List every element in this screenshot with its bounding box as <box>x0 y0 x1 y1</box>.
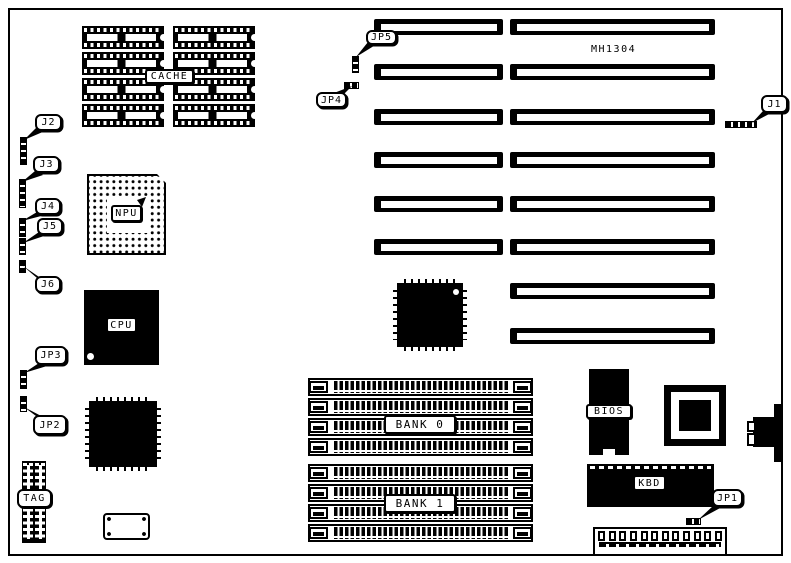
pin-strip <box>157 408 161 460</box>
isa-slot <box>510 239 715 255</box>
simm-socket <box>308 438 533 456</box>
bank1-label: BANK 1 <box>384 494 456 513</box>
callout-j2: J2 <box>35 114 62 131</box>
power-connector-pins <box>595 529 725 541</box>
chip-dash-line <box>590 466 711 469</box>
jumper-j4 <box>19 218 26 237</box>
callout-j4: J4 <box>35 198 61 215</box>
simm-latch <box>309 421 328 433</box>
isa-slot <box>374 239 503 255</box>
dip-notch <box>251 86 258 93</box>
dip-slot <box>178 34 247 41</box>
isa-slot <box>374 109 503 125</box>
callout-jp2: JP2 <box>33 415 67 435</box>
simm-socket <box>308 378 533 396</box>
simm-latch <box>513 401 532 413</box>
pin-strip <box>85 408 89 460</box>
simm-latch <box>309 527 328 539</box>
isa-slot <box>510 328 715 344</box>
dip-notch <box>251 34 258 41</box>
jumper-j3 <box>19 179 26 208</box>
simm-latch <box>513 467 532 479</box>
callout-jp5: JP5 <box>366 30 397 45</box>
simm-latch <box>309 487 328 499</box>
pin-strip <box>393 290 397 340</box>
crystal-footprint <box>103 513 150 540</box>
isa-slot <box>510 109 715 125</box>
pin-strip <box>463 290 467 340</box>
simm-latch <box>513 441 532 453</box>
pin-hole <box>694 531 701 541</box>
jumper-jp5 <box>352 56 359 73</box>
motherboard-diagram: CACHE J2 J3 J4 J5 J6 JP3 JP2 NPU CPU TAG… <box>0 0 791 563</box>
pin1-dot <box>87 353 94 360</box>
simm-latch <box>309 401 328 413</box>
isa-slot <box>510 64 715 80</box>
dip-notch <box>251 112 258 119</box>
callout-jp1: JP1 <box>712 489 743 507</box>
simm-latch <box>309 441 328 453</box>
dip-notch <box>251 60 258 67</box>
isa-slot <box>374 196 503 212</box>
din-keyboard-connector <box>753 417 779 447</box>
dip-slot <box>87 34 156 41</box>
simm-socket <box>308 524 533 542</box>
qfp-chip <box>397 283 463 347</box>
jumper-j5 <box>19 238 26 255</box>
bios-label: BIOS <box>586 404 632 419</box>
pin1-dot <box>453 289 459 295</box>
npu-label: NPU <box>111 205 142 222</box>
pin-hole <box>683 531 690 541</box>
simm-latch <box>513 381 532 393</box>
cache-dip-socket <box>82 104 164 127</box>
pin-hole <box>598 531 605 541</box>
cpu-label: CPU <box>106 317 137 333</box>
pin-hole <box>715 531 722 541</box>
cache-label: CACHE <box>145 69 194 84</box>
chip-notch <box>603 449 615 455</box>
din-connector-tab <box>747 421 756 432</box>
callout-jp3: JP3 <box>35 346 67 365</box>
dip-slot <box>87 86 156 93</box>
simm-latch <box>513 421 532 433</box>
jumper-jp1 <box>686 518 701 525</box>
pin-hole <box>651 531 658 541</box>
dip-slot <box>178 60 247 67</box>
callout-jp4: JP4 <box>316 92 347 108</box>
isa-slot <box>374 152 503 168</box>
jumper-j2 <box>20 137 27 165</box>
pin-hole <box>619 531 626 541</box>
power-connector-feet <box>599 542 721 547</box>
cache-dip-socket <box>82 26 164 49</box>
board-model-text: MH1304 <box>591 44 636 55</box>
isa-slot <box>510 19 715 35</box>
simm-latch <box>513 507 532 519</box>
isa-slot <box>510 283 715 299</box>
dip-notch <box>160 34 167 41</box>
simm-latch <box>309 381 328 393</box>
jumper-j6 <box>19 260 26 273</box>
cache-dip-socket <box>173 26 255 49</box>
callout-j1: J1 <box>761 95 788 113</box>
dip-notch <box>160 86 167 93</box>
simm-socket <box>308 398 533 416</box>
simm-socket <box>308 464 533 482</box>
bank0-label: BANK 0 <box>384 415 456 434</box>
dip-slot <box>87 60 156 67</box>
dip-notch <box>160 60 167 67</box>
isa-slot <box>510 152 715 168</box>
callout-j3: J3 <box>33 156 60 173</box>
pin-hole <box>630 531 637 541</box>
dip-notch <box>160 112 167 119</box>
jumper-jp3 <box>20 370 27 389</box>
isa-slot <box>510 196 715 212</box>
pin-hole <box>704 531 711 541</box>
simm-latch <box>513 487 532 499</box>
simm-latch <box>309 467 328 479</box>
tag-label: TAG <box>17 489 52 508</box>
qfp-chip <box>89 401 157 467</box>
isa-slot <box>374 64 503 80</box>
pin-hole <box>662 531 669 541</box>
din-connector-tab <box>747 433 756 446</box>
jumper-j1 <box>725 121 757 128</box>
kbd-label: KBD <box>633 475 666 491</box>
dip-slot <box>178 112 247 119</box>
jumper-jp2 <box>20 396 27 412</box>
plcc-socket <box>664 385 726 446</box>
pin-hole <box>609 531 616 541</box>
callout-j6: J6 <box>35 276 61 293</box>
pin-hole <box>672 531 679 541</box>
cache-dip-socket <box>173 104 255 127</box>
plcc-die <box>679 400 711 431</box>
power-connector <box>593 527 727 556</box>
jumper-jp4 <box>344 82 359 89</box>
simm-latch <box>309 507 328 519</box>
simm-latch <box>513 527 532 539</box>
callout-j5: J5 <box>37 218 63 235</box>
pin-hole <box>641 531 648 541</box>
dip-slot <box>87 112 156 119</box>
dip-slot <box>178 86 247 93</box>
